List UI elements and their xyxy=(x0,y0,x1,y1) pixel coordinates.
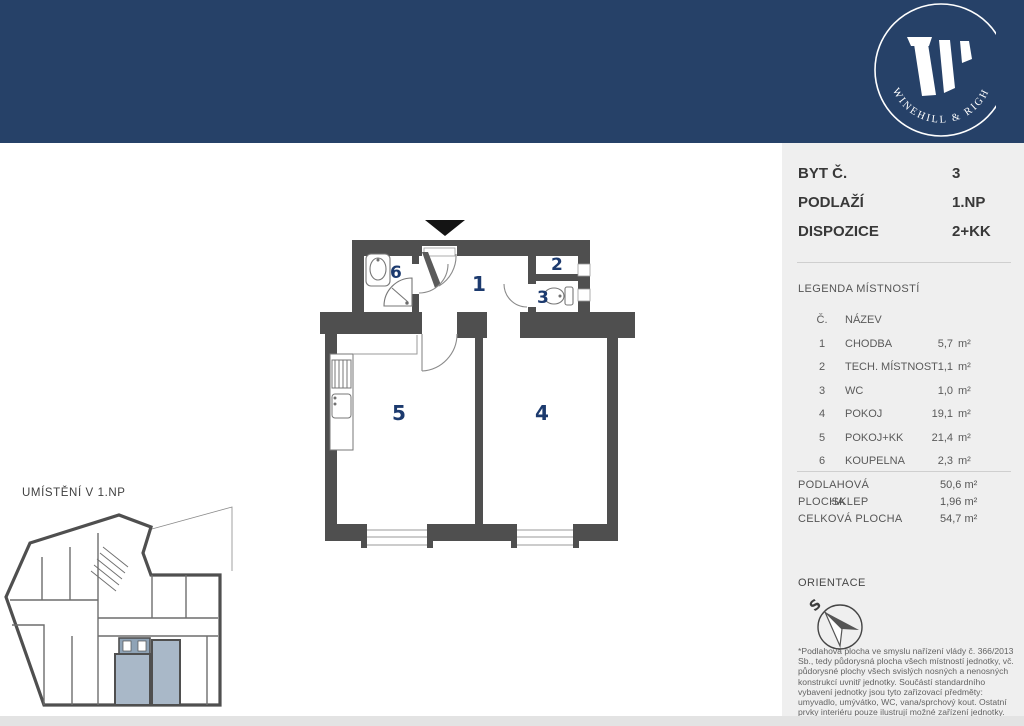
room-no: 5 xyxy=(800,427,844,451)
room-area: 1,1 xyxy=(900,356,953,380)
legend-header-row: Č. NÁZEV xyxy=(782,309,1024,333)
room-no: 1 xyxy=(800,333,844,357)
layout-row: DISPOZICE 2+KK xyxy=(798,217,1012,246)
separator xyxy=(797,471,1011,472)
entrance-arrow-icon xyxy=(425,220,465,236)
room-area-unit: m² xyxy=(958,380,971,404)
mini-plan-title: UMÍSTĚNÍ V 1.NP xyxy=(22,487,126,499)
legend-title: LEGENDA MÍSTNOSTÍ xyxy=(798,283,920,295)
room-no: 6 xyxy=(800,450,844,474)
header-band: WINEHILL & RIGH xyxy=(0,0,1024,143)
unit-number-value: 3 xyxy=(952,159,960,188)
room-area: 19,1 xyxy=(900,403,953,427)
room-no: 4 xyxy=(800,403,844,427)
room-area-unit: m² xyxy=(958,427,971,451)
unit-number-label: BYT Č. xyxy=(798,165,847,182)
room-area-unit: m² xyxy=(958,333,971,357)
unit-info: BYT Č. 3 PODLAŽÍ 1.NP DISPOZICE 2+KK xyxy=(798,159,1012,246)
floor-area-row: PODLAHOVÁ PLOCHA 50,6 m² xyxy=(782,477,1024,494)
room-area: 5,7 xyxy=(900,333,953,357)
total-area-row: CELKOVÁ PLOCHA 54,7 m² xyxy=(782,511,1024,528)
page-bottom-strip xyxy=(0,716,1024,726)
layout-label: DISPOZICE xyxy=(798,223,879,240)
room-area-unit: m² xyxy=(958,450,971,474)
cellar-label: SKLEP xyxy=(798,494,902,511)
room-name: WC xyxy=(845,380,863,404)
mini-location-plan xyxy=(2,505,245,717)
room-name: CHODBA xyxy=(845,333,892,357)
floor-row: PODLAŽÍ 1.NP xyxy=(798,188,1012,217)
floor-label: PODLAŽÍ xyxy=(798,194,864,211)
legend-row: 3 WC 1,0 m² xyxy=(782,380,1024,404)
legend-row: 2 TECH. MÍSTNOST 1,1 m² xyxy=(782,356,1024,380)
room-name: KOUPELNA xyxy=(845,450,905,474)
totals-block: PODLAHOVÁ PLOCHA 50,6 m² SKLEP 1,96 m² C… xyxy=(782,477,1024,528)
orientation-title: ORIENTACE xyxy=(798,577,866,589)
room-label-3: 3 xyxy=(537,288,549,308)
room-no: 3 xyxy=(800,380,844,404)
door-arcs xyxy=(419,252,527,371)
separator xyxy=(797,262,1011,263)
floor-value: 1.NP xyxy=(952,188,985,217)
room-label-6: 6 xyxy=(390,263,402,283)
legend-row: 4 POKOJ 19,1 m² xyxy=(782,403,1024,427)
layout-value: 2+KK xyxy=(952,217,991,246)
room-area: 1,0 xyxy=(900,380,953,404)
total-area-value: 54,7 m² xyxy=(940,511,977,528)
legend-row: 1 CHODBA 5,7 m² xyxy=(782,333,1024,357)
floorplan-page: WINEHILL & RIGH xyxy=(0,0,1024,726)
room-label-4: 4 xyxy=(535,401,549,425)
room-label-1: 1 xyxy=(472,272,486,296)
logo-monogram-w-icon xyxy=(907,37,972,96)
floor-area-value: 50,6 m² xyxy=(940,477,977,494)
room-no: 2 xyxy=(800,356,844,380)
cellar-row: SKLEP 1,96 m² xyxy=(782,494,1024,511)
kitchen-fixtures xyxy=(330,335,417,450)
legend-col-name: NÁZEV xyxy=(845,309,882,333)
cellar-value: 1,96 m² xyxy=(940,494,977,511)
unit-number-row: BYT Č. 3 xyxy=(798,159,1012,188)
logo-arc-text: WINEHILL & RIGH xyxy=(890,86,992,125)
room-legend-table: Č. NÁZEV 1 CHODBA 5,7 m² 2 TECH. MÍSTNOS… xyxy=(782,309,1024,474)
room-name: POKOJ xyxy=(845,403,882,427)
room-area: 21,4 xyxy=(900,427,953,451)
compass-north-letter: S xyxy=(807,596,825,615)
room-label-5: 5 xyxy=(392,401,406,425)
room-name: POKOJ+KK xyxy=(845,427,903,451)
main-floorplan: 1 2 3 4 5 6 xyxy=(320,212,635,562)
room-area: 2,3 xyxy=(900,450,953,474)
building-outline xyxy=(6,515,220,705)
highlighted-unit xyxy=(115,638,180,705)
room-label-2: 2 xyxy=(551,255,563,275)
room-area-unit: m² xyxy=(958,356,971,380)
room-area-unit: m² xyxy=(958,403,971,427)
legend-row: 5 POKOJ+KK 21,4 m² xyxy=(782,427,1024,451)
legend-col-no: Č. xyxy=(800,309,844,333)
total-area-label: CELKOVÁ PLOCHA xyxy=(798,511,918,528)
info-panel: BYT Č. 3 PODLAŽÍ 1.NP DISPOZICE 2+KK LEG… xyxy=(782,143,1024,716)
legal-disclaimer: *Podlahová plocha ve smyslu nařízení vlá… xyxy=(798,646,1016,717)
legend-row: 6 KOUPELNA 2,3 m² xyxy=(782,450,1024,474)
brand-logo: WINEHILL & RIGH xyxy=(796,0,996,143)
